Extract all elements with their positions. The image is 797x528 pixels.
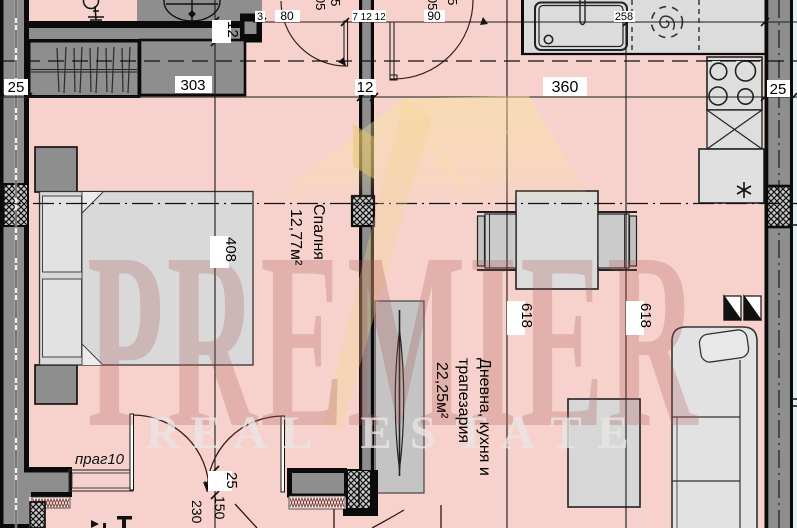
svg-text:E: E [360, 407, 391, 459]
svg-text:360: 360 [552, 79, 579, 96]
svg-text:E: E [597, 407, 628, 459]
svg-text:408: 408 [222, 237, 239, 262]
svg-text:12: 12 [224, 21, 241, 38]
svg-text:S: S [410, 407, 436, 459]
svg-text:25: 25 [8, 79, 25, 96]
svg-text:230: 230 [189, 500, 205, 524]
svg-text:2,05: 2,05 [445, 0, 460, 5]
svg-text:Дневна, кухня и: Дневна, кухня и [476, 358, 493, 476]
svg-text:25: 25 [770, 81, 787, 98]
svg-text:150: 150 [212, 496, 228, 520]
svg-text:303: 303 [180, 77, 205, 94]
svg-text:12,77м²: 12,77м² [287, 209, 304, 266]
svg-text:R: R [146, 407, 181, 459]
svg-text:E: E [190, 407, 221, 459]
svg-text:12: 12 [357, 79, 374, 96]
svg-text:22,25м²: 22,25м² [433, 362, 450, 419]
svg-text:2,05: 2,05 [425, 0, 440, 10]
svg-text:2,05: 2,05 [328, 0, 343, 6]
svg-text:Спалня: Спалня [310, 204, 327, 260]
svg-text:258: 258 [615, 11, 633, 23]
svg-text:7 12 12: 7 12 12 [352, 12, 386, 23]
svg-text:80: 80 [280, 9, 294, 23]
svg-text:T: T [550, 407, 581, 459]
svg-text:праг10: праг10 [75, 451, 125, 468]
svg-text:2,05: 2,05 [313, 0, 328, 10]
svg-text:618: 618 [518, 303, 535, 328]
svg-text:618: 618 [637, 303, 654, 328]
svg-text:90: 90 [427, 9, 441, 23]
svg-text:L: L [281, 407, 312, 459]
svg-text:A: A [233, 407, 267, 459]
svg-text:25: 25 [223, 472, 240, 489]
svg-text:трапезария: трапезария [455, 358, 472, 443]
svg-text:A: A [501, 407, 535, 459]
svg-text:3: 3 [257, 11, 263, 23]
